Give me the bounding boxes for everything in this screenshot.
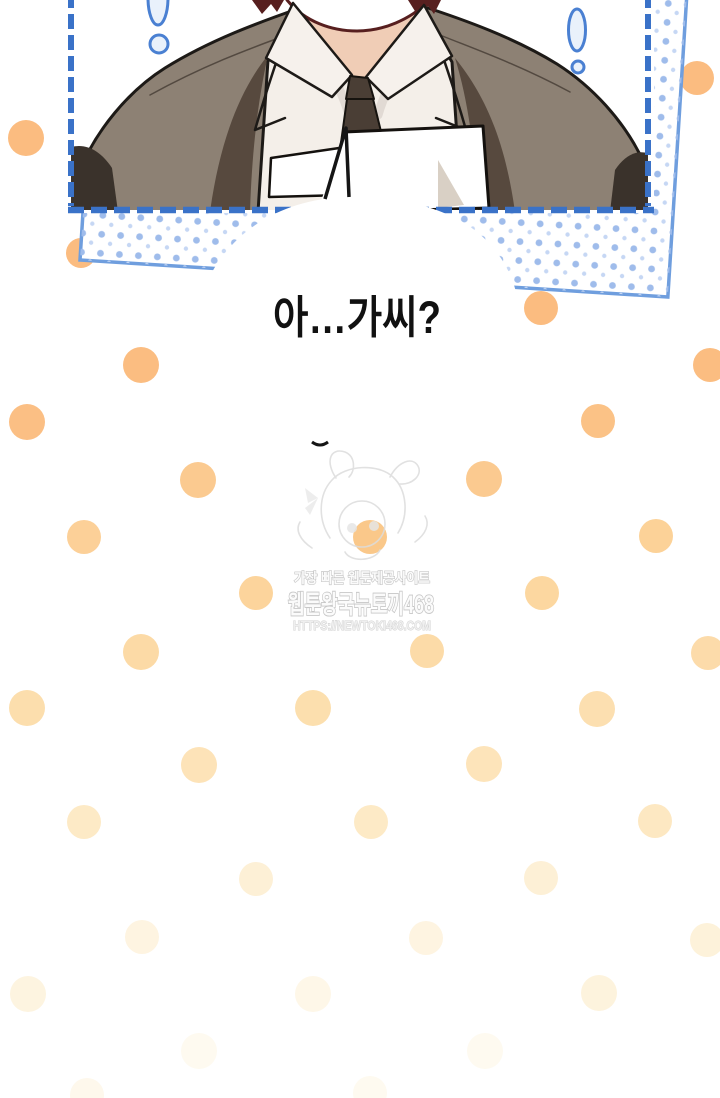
mascot-ear-left — [330, 451, 353, 478]
speech-bubble: 아…가씨? — [199, 128, 519, 445]
watermark: 가장 빠른 웹툰제공사이트 웹툰왕국뉴토끼468 HTTPS://NEWTOKI… — [288, 570, 434, 633]
mascot-body — [345, 550, 380, 559]
mascot-eye-left — [347, 523, 357, 533]
watermark-line2: 웹툰왕국뉴토끼468 — [288, 591, 434, 619]
bubble-bottom-notch — [312, 442, 328, 445]
speech-bubble-text: 아…가씨? — [273, 292, 441, 343]
mascot-hood — [321, 468, 405, 538]
overlay: 아…가씨? 가장 빠른 웹툰제공사이트 웹툰왕국뉴토끼468 HTTPS://N… — [0, 0, 720, 1098]
mascot-bow — [305, 488, 318, 515]
webtoon-page: 아…가씨? 가장 빠른 웹툰제공사이트 웹툰왕국뉴토끼468 HTTPS://N… — [0, 0, 720, 1098]
mascot-ear-right — [390, 461, 419, 484]
watermark-line1: 가장 빠른 웹툰제공사이트 — [294, 570, 430, 586]
mascot-wing-right — [415, 516, 427, 542]
watermark-mascot-icon — [298, 451, 427, 559]
mascot-wing-left — [298, 522, 312, 548]
mascot-eye-right — [369, 521, 379, 531]
watermark-line3: HTTPS://NEWTOKI468.COM — [293, 618, 431, 633]
